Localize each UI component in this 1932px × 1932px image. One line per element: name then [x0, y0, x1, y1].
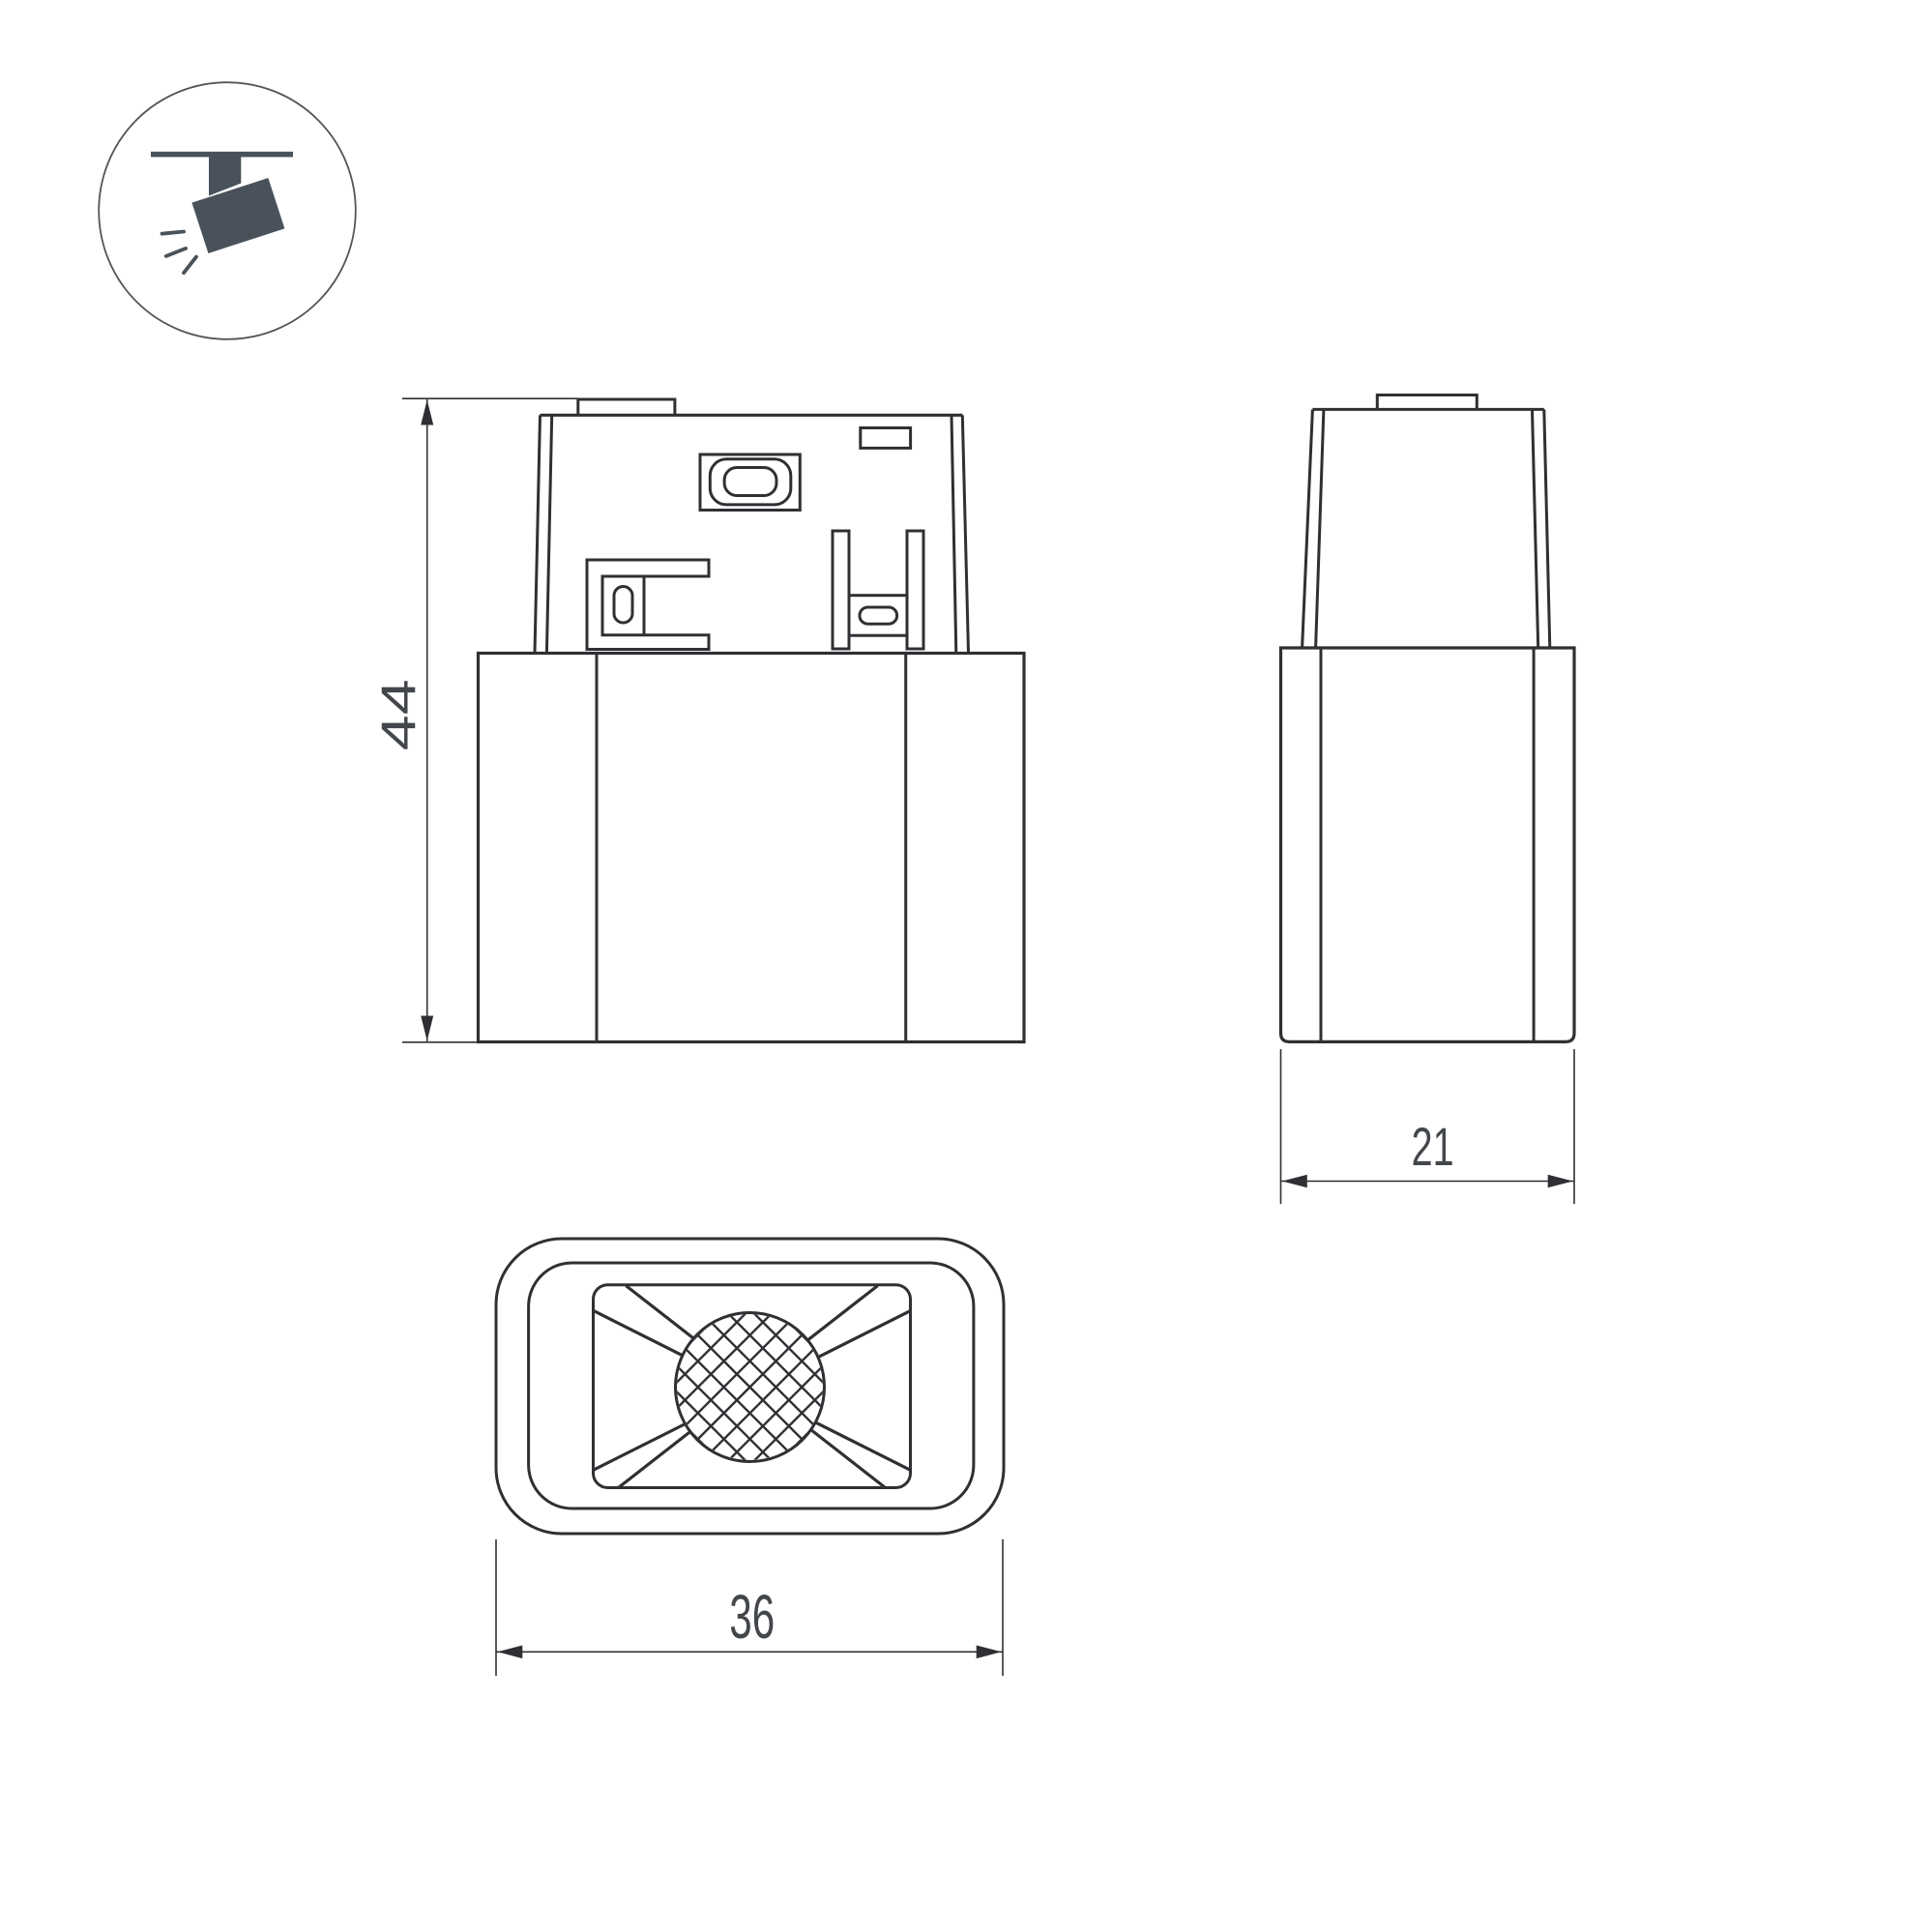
svg-text:21: 21 — [1412, 1116, 1454, 1177]
svg-text:44: 44 — [372, 679, 426, 750]
svg-text:36: 36 — [729, 1582, 775, 1652]
